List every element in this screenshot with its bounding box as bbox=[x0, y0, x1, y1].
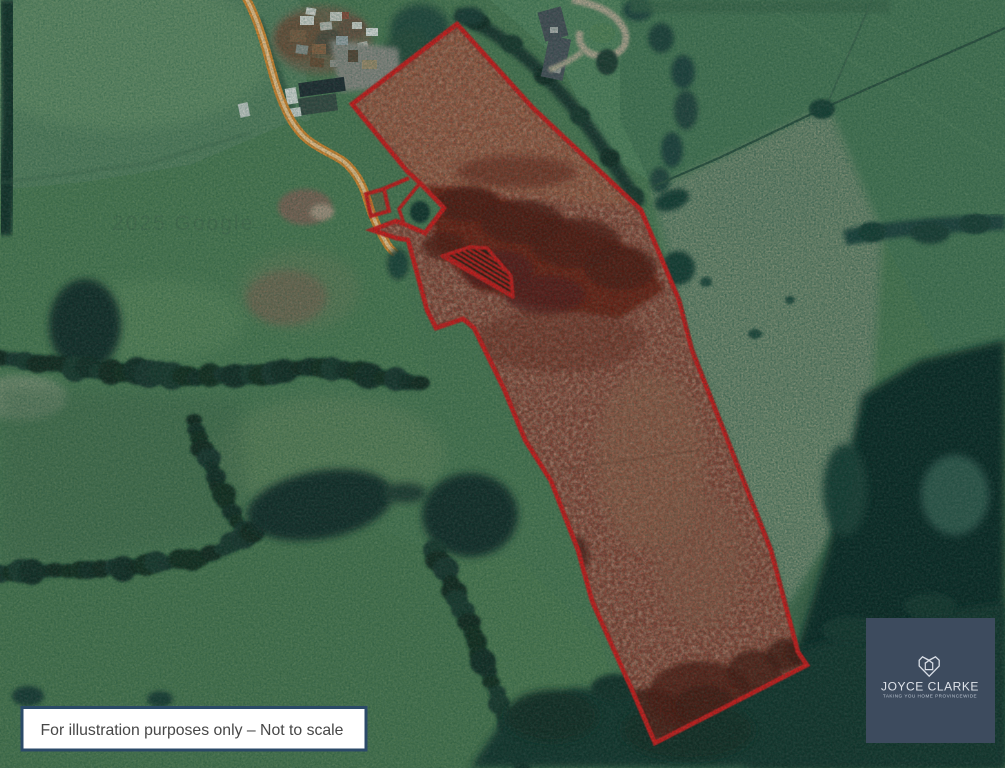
svg-text:JOYCE CLARKE: JOYCE CLARKE bbox=[881, 680, 979, 694]
svg-text:For illustration purposes only: For illustration purposes only – Not to … bbox=[41, 722, 344, 739]
svg-text:TAKING YOU HOME PROVINCEWIDE: TAKING YOU HOME PROVINCEWIDE bbox=[883, 694, 977, 699]
